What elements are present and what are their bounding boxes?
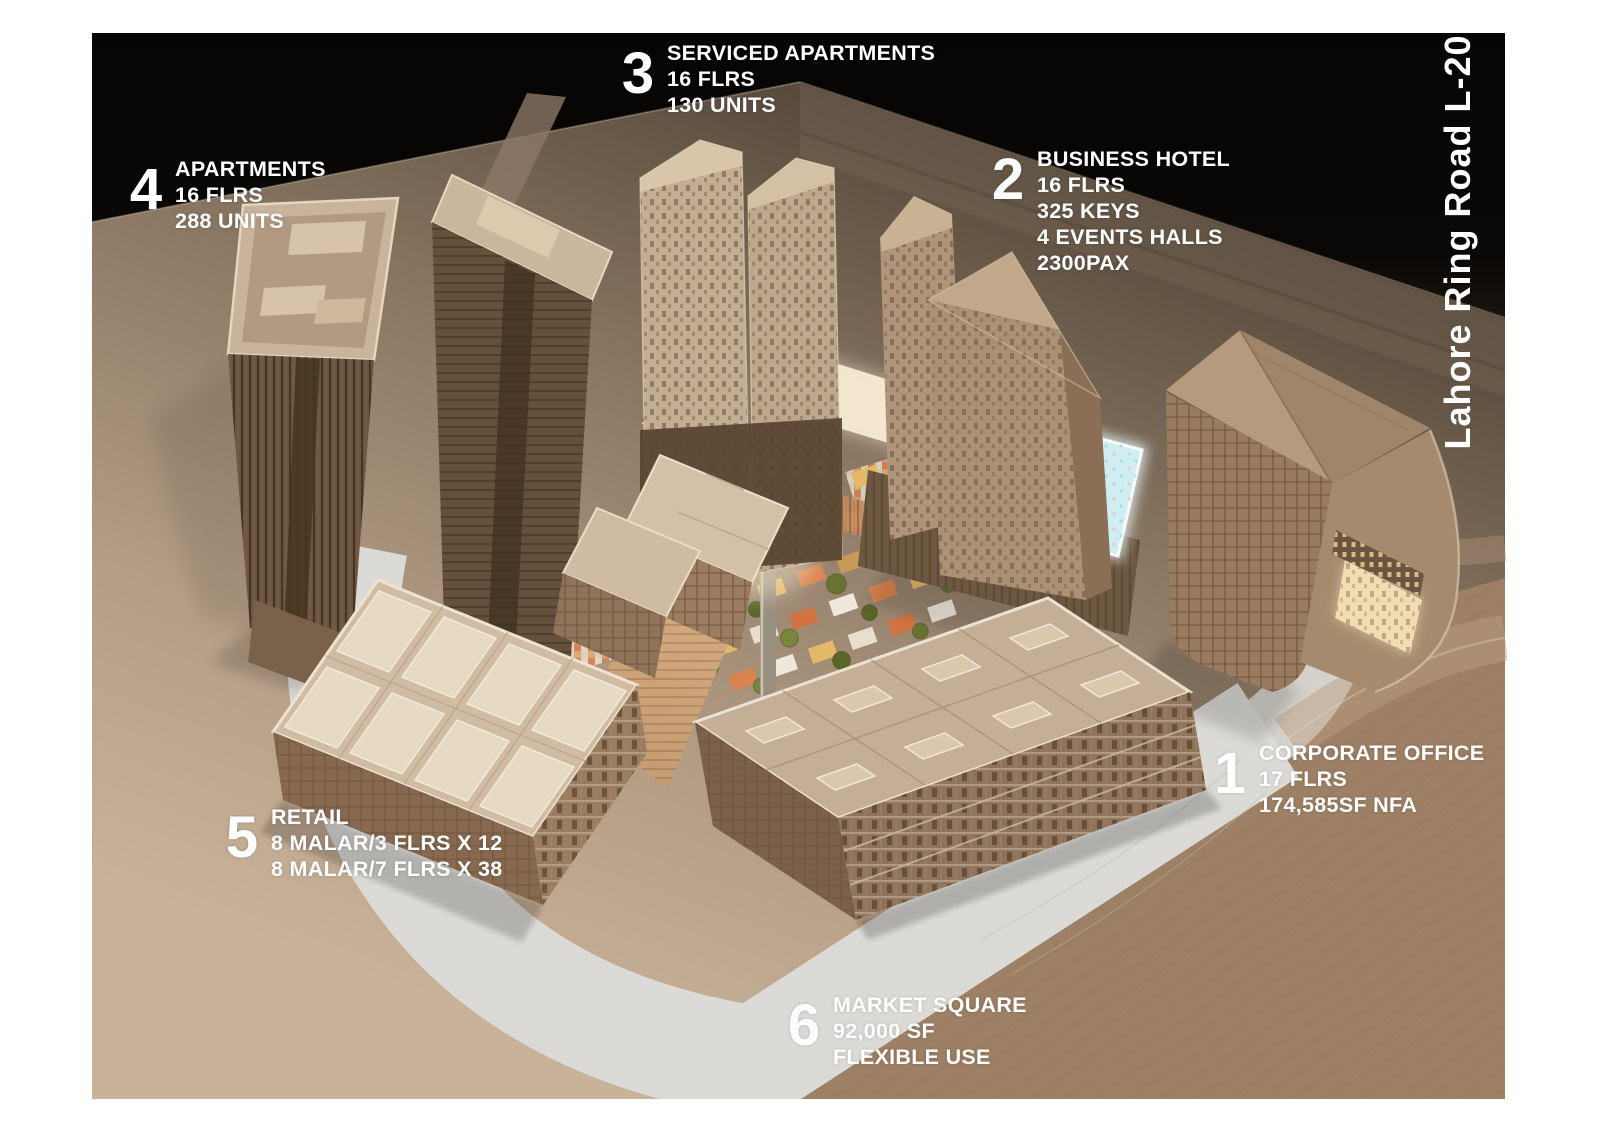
annotation-apartments: 4 APARTMENTS 16 FLRS 288 UNITS — [128, 156, 326, 234]
annotation-line: 16 FLRS — [1037, 172, 1230, 198]
annotation-line: FLEXIBLE USE — [833, 1044, 1027, 1070]
annotation-line: 2300PAX — [1037, 250, 1230, 276]
annotation-retail: 5 RETAIL 8 MALAR/3 FLRS X 12 8 MALAR/7 F… — [224, 804, 503, 882]
annotation-number: 6 — [786, 997, 822, 1070]
annotation-business-hotel: 2 BUSINESS HOTEL 16 FLRS 325 KEYS 4 EVEN… — [990, 146, 1230, 276]
annotation-line: 4 EVENTS HALLS — [1037, 224, 1230, 250]
annotation-title: BUSINESS HOTEL — [1037, 146, 1230, 172]
annotation-number: 5 — [224, 809, 260, 882]
annotation-line: 8 MALAR/7 FLRS X 38 — [271, 856, 503, 882]
annotation-line: 17 FLRS — [1259, 766, 1484, 792]
annotation-title: MARKET SQUARE — [833, 992, 1027, 1018]
annotation-market-square: 6 MARKET SQUARE 92,000 SF FLEXIBLE USE — [786, 992, 1027, 1070]
annotation-serviced-apartments: 3 SERVICED APARTMENTS 16 FLRS 130 UNITS — [620, 40, 935, 118]
annotation-line: 16 FLRS — [175, 182, 326, 208]
annotation-line: 174,585SF NFA — [1259, 792, 1484, 818]
annotation-line: 288 UNITS — [175, 208, 326, 234]
annotation-corporate-office: 1 CORPORATE OFFICE 17 FLRS 174,585SF NFA — [1212, 740, 1484, 818]
annotation-line: 92,000 SF — [833, 1018, 1027, 1044]
annotation-number: 1 — [1212, 745, 1248, 818]
annotation-title: SERVICED APARTMENTS — [667, 40, 935, 66]
annotation-number: 4 — [128, 161, 164, 234]
annotation-line: 8 MALAR/3 FLRS X 12 — [271, 830, 503, 856]
annotation-number: 2 — [990, 151, 1026, 276]
annotation-line: 325 KEYS — [1037, 198, 1230, 224]
annotation-line: 130 UNITS — [667, 92, 935, 118]
annotation-title: APARTMENTS — [175, 156, 326, 182]
annotation-title: RETAIL — [271, 804, 503, 830]
road-label-lahore-ring-road: Lahore Ring Road L-20 — [1437, 34, 1479, 449]
annotation-line: 16 FLRS — [667, 66, 935, 92]
annotation-number: 3 — [620, 45, 656, 118]
annotation-title: CORPORATE OFFICE — [1259, 740, 1484, 766]
